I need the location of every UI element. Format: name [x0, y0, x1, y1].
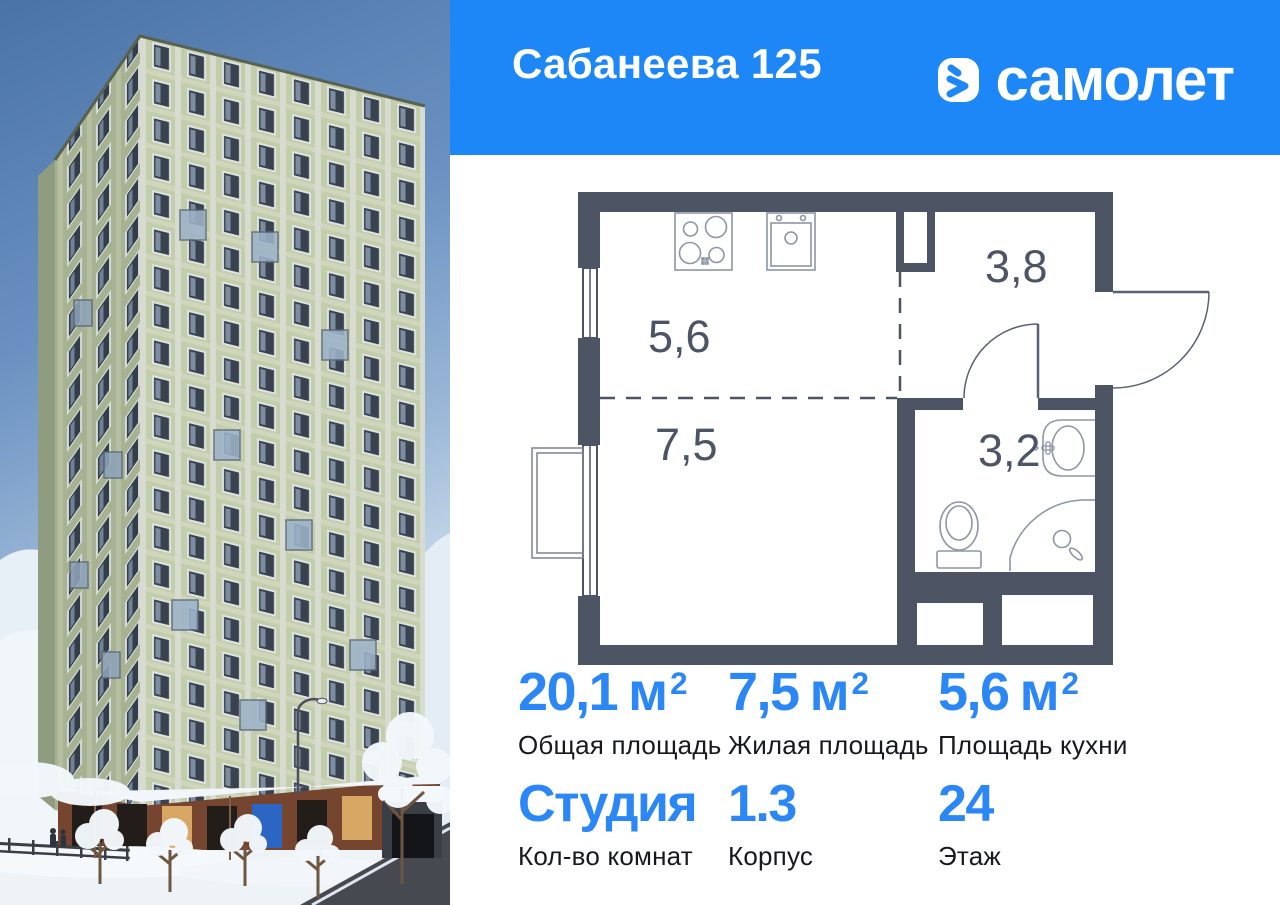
stat-value: 5,6м2: [938, 665, 1148, 719]
stat-rooms: Студия Кол-во комнат: [518, 778, 728, 872]
building-photo: [0, 0, 450, 905]
stat-label: Корпус: [728, 841, 938, 872]
room-area-label: 3,2: [978, 425, 1041, 476]
info-panel: Сабанеева 125 самолет: [450, 0, 1280, 905]
stat-value: 7,5м2: [728, 665, 938, 719]
stat-label: Кол-во комнат: [518, 841, 728, 872]
stat-label: Жилая площадь: [728, 730, 938, 761]
toilet-icon: [937, 502, 981, 568]
shower-icon: [1010, 500, 1095, 571]
room-area-label: 7,5: [655, 419, 718, 470]
stat-floor: 24 Этаж: [938, 778, 1148, 872]
kitchen-sink-icon: [767, 213, 815, 270]
stat-value: 24: [938, 778, 1148, 830]
brand-name: самолет: [995, 50, 1234, 110]
stat-value: 1.3: [728, 778, 938, 830]
stat-living-area: 7,5м2 Жилая площадь: [728, 665, 938, 761]
brand-logo: самолет: [938, 50, 1234, 110]
stat-label: Этаж: [938, 841, 1148, 872]
bathroom-sink-icon: [1034, 420, 1095, 476]
stat-value: 20,1м2: [518, 665, 728, 719]
stat-building: 1.3 Корпус: [728, 778, 938, 872]
listing-card: Сабанеева 125 самолет: [0, 0, 1280, 905]
tower: [38, 36, 425, 826]
balcony-outline: [532, 448, 583, 558]
doors: [964, 292, 1209, 398]
stat-value: Студия: [518, 778, 728, 830]
zone-dashes: [600, 272, 900, 398]
stat-label: Общая площадь: [518, 730, 728, 761]
room-area-label: 3,8: [985, 241, 1048, 292]
floor-plan: 5,6 3,8 7,5 3,2: [515, 192, 1215, 667]
header: Сабанеева 125 самолет: [450, 0, 1280, 155]
stat-kitchen-area: 5,6м2 Площадь кухни: [938, 665, 1148, 761]
samolet-arrow-icon: [938, 58, 979, 102]
room-area-label: 5,6: [648, 311, 711, 362]
stats-row-areas: 20,1м2 Общая площадь 7,5м2 Жилая площадь…: [518, 665, 1148, 761]
page-title: Сабанеева 125: [512, 40, 822, 88]
stat-label: Площадь кухни: [938, 730, 1148, 761]
stats-row-info: Студия Кол-во комнат 1.3 Корпус 24 Этаж: [518, 778, 1148, 872]
building-photo-art: [0, 0, 450, 905]
stove-icon: [675, 213, 732, 270]
stat-total-area: 20,1м2 Общая площадь: [518, 665, 728, 761]
